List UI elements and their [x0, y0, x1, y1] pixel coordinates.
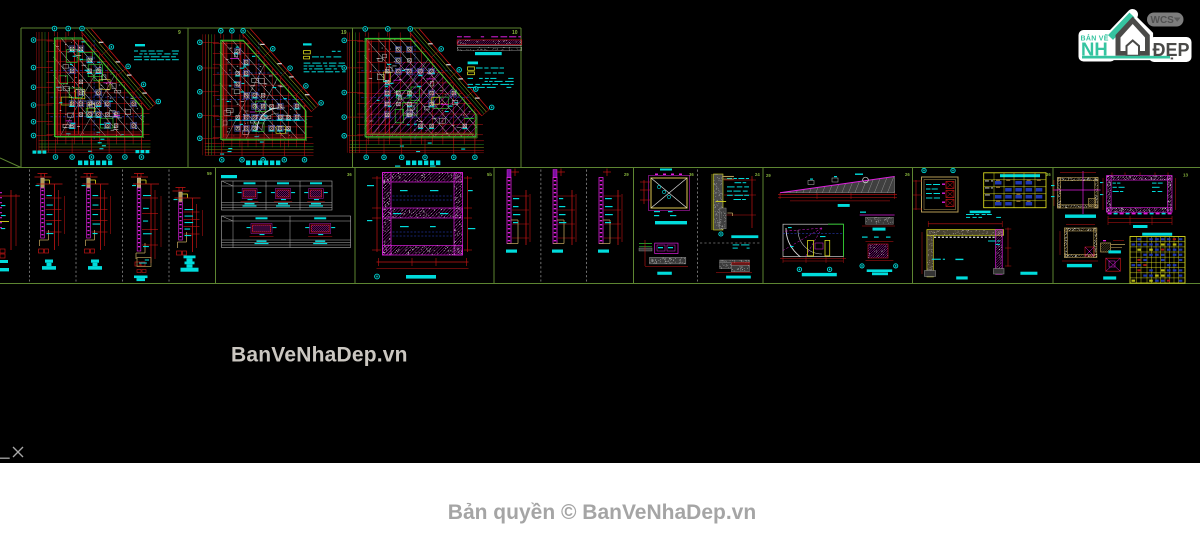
svg-text:10: 10 — [512, 30, 518, 36]
svg-text:9: 9 — [178, 30, 181, 36]
svg-text:ĐẸP: ĐẸP — [1153, 40, 1190, 60]
svg-text:13: 13 — [1183, 173, 1189, 178]
svg-text:BanVeNhaDep.vn: BanVeNhaDep.vn — [231, 344, 408, 367]
svg-text:26: 26 — [905, 172, 910, 177]
svg-text:24: 24 — [755, 172, 760, 177]
svg-text:29: 29 — [766, 173, 771, 178]
svg-text:36: 36 — [689, 172, 694, 177]
svg-text:59: 59 — [207, 171, 212, 176]
svg-text:36: 36 — [347, 172, 352, 177]
svg-text:Bản quyền © BanVeNhaDep.vn: Bản quyền © BanVeNhaDep.vn — [448, 501, 756, 524]
svg-text:36: 36 — [1046, 172, 1051, 177]
svg-text:19: 19 — [341, 30, 347, 36]
svg-text:29: 29 — [624, 172, 629, 177]
svg-text:WCS: WCS — [1151, 15, 1175, 26]
svg-text:5b: 5b — [487, 172, 492, 177]
